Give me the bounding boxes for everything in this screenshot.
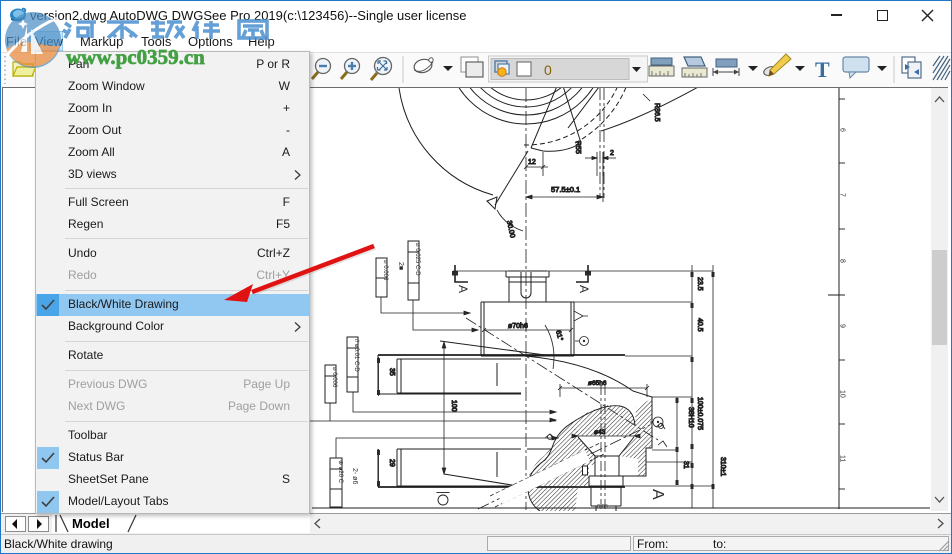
svg-text:A: A (456, 285, 470, 293)
svg-text:10: 10 (839, 390, 846, 398)
svg-text:R36.5: R36.5 (653, 103, 660, 122)
svg-text:12: 12 (528, 159, 536, 166)
svg-text:9: 9 (839, 324, 846, 328)
svg-text:6: 6 (839, 128, 846, 132)
svg-text:0: 0 (544, 62, 552, 78)
svg-text:30.00: 30.00 (505, 220, 516, 239)
svg-text:⌀ 0.025 C-D: ⌀ 0.025 C-D (414, 243, 420, 276)
svg-text:100±0.075: 100±0.075 (696, 397, 703, 430)
svg-text:310±1: 310±1 (719, 457, 726, 477)
svg-text:⌀ 0.006: ⌀ 0.006 (382, 260, 388, 281)
svg-text:29: 29 (388, 459, 395, 467)
svg-text:7: 7 (839, 193, 846, 197)
svg-text:A: A (577, 285, 591, 293)
svg-text:// ø0.01 C-D: // ø0.01 C-D (353, 339, 359, 372)
svg-text:2- ø6: 2- ø6 (351, 468, 358, 484)
svg-text:⊕ ø20 C: ⊕ ø20 C (337, 460, 343, 484)
svg-text:31: 31 (682, 461, 689, 469)
svg-text:8: 8 (839, 259, 846, 263)
svg-text:ø43: ø43 (594, 429, 606, 436)
svg-text:ø70h6: ø70h6 (508, 323, 528, 330)
svg-text:⌀ 0.006: ⌀ 0.006 (331, 367, 337, 388)
svg-text:T: T (815, 57, 830, 82)
svg-text:11: 11 (839, 455, 846, 462)
svg-text:2: 2 (610, 150, 614, 157)
svg-text:A: A (649, 489, 666, 500)
svg-text:R55: R55 (574, 141, 581, 154)
svg-text:0.08: 0.08 (597, 504, 608, 510)
svg-text:38H10: 38H10 (687, 407, 694, 428)
svg-text:40.5: 40.5 (696, 318, 703, 332)
svg-text:23.5: 23.5 (696, 277, 703, 291)
svg-text:57.5±0.1: 57.5±0.1 (551, 185, 580, 194)
svg-text:35: 35 (388, 368, 395, 376)
svg-text:61°: 61° (554, 329, 565, 341)
svg-text:100: 100 (450, 400, 457, 412)
svg-text:ø65h6: ø65h6 (588, 380, 607, 387)
svg-text:2■: 2■ (397, 262, 404, 270)
